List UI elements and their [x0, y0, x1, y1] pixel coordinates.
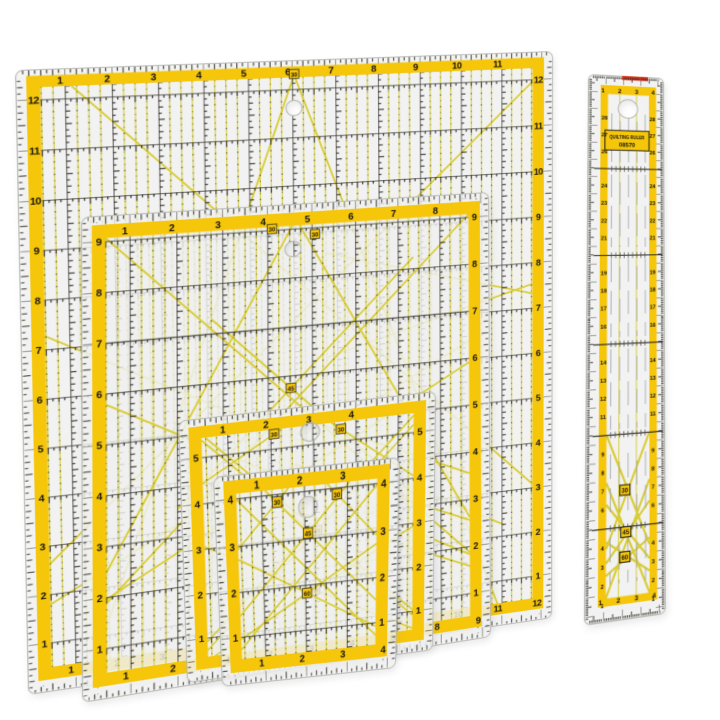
svg-text:22: 22: [650, 219, 657, 224]
svg-text:13: 13: [600, 379, 607, 385]
svg-text:1: 1: [57, 75, 63, 87]
svg-text:45: 45: [622, 529, 629, 537]
svg-text:QUILTING RULER: QUILTING RULER: [610, 135, 645, 141]
svg-text:18: 18: [601, 289, 608, 295]
svg-text:4: 4: [260, 217, 266, 228]
svg-text:5: 5: [241, 69, 247, 80]
svg-text:4: 4: [473, 447, 478, 458]
svg-text:2: 2: [473, 541, 478, 552]
svg-text:3: 3: [635, 595, 639, 602]
svg-text:30: 30: [312, 232, 319, 239]
svg-text:8: 8: [472, 259, 477, 270]
svg-text:12: 12: [534, 75, 544, 86]
svg-text:18: 18: [650, 288, 657, 294]
svg-text:10: 10: [534, 167, 544, 178]
svg-text:1: 1: [42, 639, 48, 651]
svg-text:1: 1: [416, 606, 421, 616]
svg-text:9: 9: [96, 237, 102, 249]
svg-text:17: 17: [601, 307, 608, 313]
svg-text:08570: 08570: [619, 142, 636, 149]
svg-text:2: 2: [170, 663, 176, 675]
svg-text:4: 4: [652, 593, 656, 600]
svg-text:3: 3: [40, 542, 46, 554]
svg-text:23: 23: [650, 202, 657, 207]
svg-text:5: 5: [38, 444, 44, 456]
svg-text:4: 4: [96, 491, 102, 503]
svg-text:28: 28: [602, 116, 609, 121]
svg-text:2: 2: [616, 597, 620, 604]
svg-text:12: 12: [28, 95, 40, 107]
svg-text:45: 45: [288, 386, 295, 393]
svg-text:3: 3: [215, 220, 221, 231]
svg-text:10: 10: [30, 196, 42, 208]
svg-text:6: 6: [348, 211, 354, 222]
svg-text:19: 19: [601, 271, 608, 277]
svg-text:2: 2: [263, 420, 269, 431]
svg-text:12: 12: [600, 397, 607, 403]
svg-text:14: 14: [600, 361, 607, 367]
svg-text:1: 1: [97, 644, 103, 656]
svg-text:17: 17: [650, 305, 657, 311]
svg-text:11: 11: [600, 415, 607, 421]
svg-text:11: 11: [29, 146, 40, 158]
svg-text:26: 26: [601, 150, 608, 155]
svg-text:5: 5: [536, 393, 541, 404]
svg-text:1: 1: [199, 635, 205, 645]
svg-text:30: 30: [271, 432, 278, 439]
svg-text:13: 13: [650, 376, 657, 382]
svg-text:8: 8: [96, 288, 102, 300]
svg-text:30: 30: [269, 227, 276, 234]
svg-text:9: 9: [413, 62, 418, 73]
svg-text:1: 1: [598, 600, 602, 608]
svg-text:30: 30: [334, 492, 341, 499]
svg-text:6: 6: [472, 353, 477, 364]
svg-text:4: 4: [39, 493, 45, 505]
svg-text:2: 2: [536, 527, 541, 538]
svg-text:8: 8: [536, 258, 541, 269]
svg-text:4: 4: [536, 438, 541, 449]
svg-text:5: 5: [96, 440, 102, 452]
svg-text:1: 1: [122, 226, 128, 238]
svg-text:7: 7: [96, 339, 102, 351]
svg-text:4: 4: [196, 70, 202, 81]
svg-text:3: 3: [150, 72, 156, 83]
svg-text:3: 3: [97, 542, 103, 554]
svg-text:7: 7: [536, 303, 541, 314]
svg-text:3: 3: [196, 546, 202, 557]
svg-text:9: 9: [536, 212, 541, 223]
svg-text:9: 9: [472, 212, 477, 223]
svg-text:12: 12: [650, 394, 657, 400]
svg-text:60: 60: [621, 554, 628, 562]
svg-text:1: 1: [123, 670, 129, 682]
svg-text:5: 5: [193, 454, 199, 465]
svg-text:27: 27: [601, 133, 608, 138]
svg-text:1: 1: [68, 665, 74, 677]
svg-text:7: 7: [36, 345, 42, 357]
svg-text:9: 9: [476, 615, 481, 626]
svg-text:1: 1: [601, 88, 605, 94]
svg-text:2: 2: [618, 89, 622, 95]
svg-text:7: 7: [472, 306, 477, 317]
svg-text:11: 11: [493, 59, 502, 70]
svg-text:45: 45: [305, 531, 312, 538]
svg-text:22: 22: [601, 219, 608, 224]
svg-text:24: 24: [650, 185, 657, 190]
svg-text:3: 3: [635, 90, 639, 96]
svg-text:4: 4: [651, 90, 655, 96]
svg-text:16: 16: [650, 323, 657, 329]
svg-text:3: 3: [473, 494, 478, 505]
svg-text:2: 2: [97, 593, 103, 605]
svg-text:30: 30: [274, 500, 281, 507]
svg-text:30: 30: [622, 487, 629, 494]
svg-text:7: 7: [391, 209, 396, 220]
svg-text:4: 4: [349, 410, 355, 421]
svg-text:7: 7: [328, 65, 334, 76]
svg-text:9: 9: [34, 246, 40, 258]
svg-text:4: 4: [195, 500, 201, 511]
svg-text:2: 2: [41, 590, 47, 602]
svg-text:2: 2: [104, 74, 110, 85]
svg-text:8: 8: [35, 296, 41, 308]
svg-text:16: 16: [600, 325, 607, 331]
svg-text:2: 2: [169, 223, 175, 235]
svg-text:6: 6: [96, 389, 102, 401]
svg-text:6: 6: [536, 348, 541, 359]
svg-text:5: 5: [473, 400, 478, 411]
svg-text:3: 3: [416, 518, 422, 528]
svg-text:11: 11: [534, 121, 543, 132]
svg-text:11: 11: [494, 603, 503, 614]
svg-text:21: 21: [601, 236, 608, 241]
svg-text:8: 8: [433, 206, 438, 217]
svg-text:28: 28: [649, 118, 655, 123]
svg-text:19: 19: [650, 270, 657, 276]
svg-text:12: 12: [532, 598, 542, 609]
svg-text:11: 11: [650, 412, 656, 418]
svg-text:5: 5: [417, 428, 423, 439]
svg-text:8: 8: [371, 64, 377, 75]
svg-text:8: 8: [434, 622, 439, 633]
svg-text:5: 5: [305, 214, 311, 225]
svg-text:23: 23: [601, 201, 608, 206]
svg-text:10: 10: [452, 61, 462, 72]
svg-text:1: 1: [536, 571, 541, 582]
svg-text:30: 30: [338, 427, 345, 434]
svg-text:2: 2: [197, 591, 203, 601]
svg-text:3: 3: [306, 415, 312, 426]
svg-text:21: 21: [650, 236, 657, 241]
svg-text:3: 3: [536, 482, 541, 493]
svg-text:30: 30: [291, 72, 298, 79]
svg-text:27: 27: [649, 134, 655, 139]
svg-text:14: 14: [650, 358, 657, 364]
svg-text:60: 60: [304, 591, 311, 598]
svg-text:1: 1: [473, 588, 478, 599]
svg-text:4: 4: [417, 473, 423, 484]
svg-text:6: 6: [37, 395, 43, 407]
svg-text:26: 26: [649, 151, 655, 156]
svg-text:1: 1: [220, 425, 226, 436]
svg-text:2: 2: [416, 563, 422, 573]
svg-text:24: 24: [601, 184, 608, 189]
